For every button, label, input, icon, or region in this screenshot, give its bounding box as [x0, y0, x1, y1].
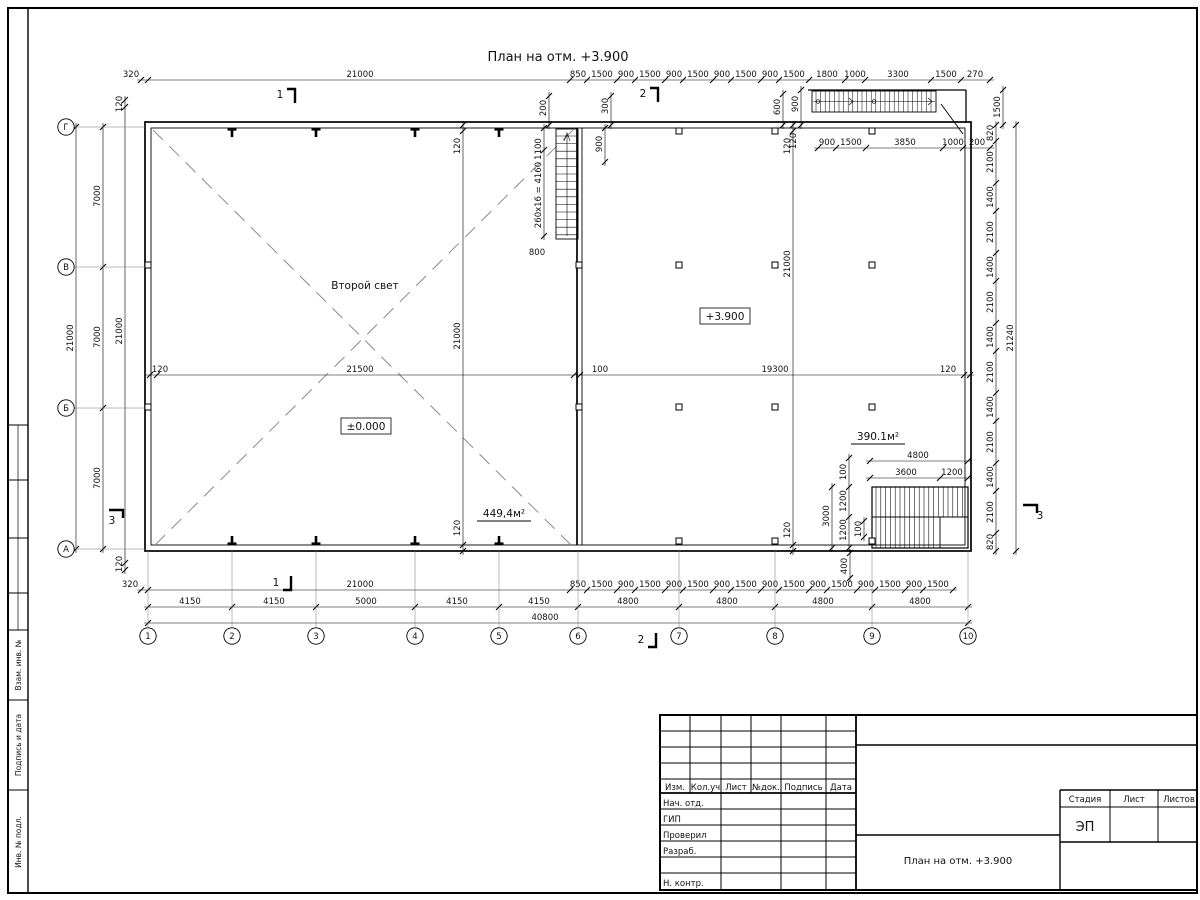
dim-chain-br1: 4800 [866, 451, 972, 464]
area-label: 449,4м² [483, 508, 525, 520]
dim-chain-int790: 12021000120 [783, 121, 796, 555]
dim-label: 900 [666, 580, 682, 590]
dim-label: 21000 [453, 322, 463, 349]
dim-label: 900 [858, 580, 874, 590]
dim-label: 900 [618, 70, 634, 80]
axis-number: 7 [676, 632, 681, 642]
section-marker-flag [287, 89, 295, 103]
section-marker-label: 1 [273, 577, 280, 589]
column-mark [676, 404, 682, 410]
dim-chain-right1: 8202100140021001400210014002100140021001… [986, 121, 999, 555]
dim-label: 1400 [986, 466, 996, 488]
axis-bubbles: ГВБА12345678910 [58, 119, 976, 644]
dim-label: 320 [123, 70, 139, 80]
dim-chain-tv1500: 1500 [993, 86, 1006, 129]
tb-role-cell: Н. контр. [663, 879, 704, 889]
tb-role-cell: ГИП [663, 815, 681, 825]
dim-chain-op900: 900 [595, 124, 608, 166]
column-mark [772, 128, 778, 134]
dim-label: 120 [453, 520, 463, 536]
dim-label: 120 [115, 96, 125, 112]
dim-label: 1500 [639, 70, 661, 80]
dim-label: 120 [789, 133, 799, 149]
dim-label: 2100 [986, 501, 996, 523]
dim-label: 120 [152, 365, 168, 375]
dim-label: 200 [969, 138, 985, 148]
dim-label: 820 [986, 125, 996, 141]
column-mark [869, 262, 875, 268]
dim-label: 1500 [687, 70, 709, 80]
dim-label: 21000 [346, 580, 373, 590]
dim-label: 600 [773, 99, 783, 115]
axis-number: 3 [313, 632, 318, 642]
dim-label: 1500 [687, 580, 709, 590]
dim-label: 900 [819, 138, 835, 148]
dim-label: 2100 [986, 291, 996, 313]
tb-stage-header: Стадия [1069, 795, 1102, 805]
columns [145, 128, 875, 545]
tb-header-cell: Кол.уч [691, 783, 720, 793]
dim-label: 260x16 = 4160 [534, 162, 544, 228]
axis-letter: В [63, 263, 69, 273]
dim-chain-tv600: 600 [773, 90, 786, 129]
dim-label: 1000 [942, 138, 964, 148]
dim-label: 3850 [894, 138, 916, 148]
dim-label: 4800 [812, 597, 834, 607]
dim-chain-bot1: 3202100085015009001500900150090015009001… [122, 580, 957, 593]
dim-label: 21000 [346, 70, 373, 80]
column-mark [869, 404, 875, 410]
dim-label: 1500 [735, 70, 757, 80]
stair-axis6 [556, 129, 578, 239]
column-mark [676, 262, 682, 268]
tb-role-cell: Нач. отд. [663, 799, 704, 809]
dim-label: 1100 [534, 138, 544, 160]
dim-chain-brv4: 400 [840, 549, 853, 582]
dim-label: 900 [714, 70, 730, 80]
dim-label: 2100 [986, 431, 996, 453]
dim-label: 1500 [639, 580, 661, 590]
dim-label: 1500 [840, 138, 862, 148]
dim-label: 100 [592, 365, 608, 375]
stair-exterior-top [808, 90, 966, 134]
section-marker-flag [650, 88, 658, 102]
dim-label: 900 [762, 70, 778, 80]
dim-label: 320 [122, 580, 138, 590]
tb-header-cell: Подпись [784, 783, 822, 793]
column-mark [145, 262, 151, 268]
dim-label: 21000 [115, 317, 125, 344]
dim-label: 1500 [993, 96, 1003, 118]
void-cross-lines [153, 130, 573, 547]
dim-chain-br2: 36001200 [866, 468, 972, 481]
dim-chain-bot3: 40800 [144, 613, 972, 626]
axis-number: 2 [229, 632, 234, 642]
dim-label: 120 [115, 556, 125, 572]
dim-label: 1500 [591, 580, 613, 590]
dim-chain-right2: 21240 [1006, 121, 1019, 555]
dim-chain-bot2: 415041505000415041504800480048004800 [144, 597, 972, 610]
tb-header-cell: Дата [830, 783, 852, 793]
room-labels: Второй свет±0.000+3.900449,4м²390.1м² [331, 280, 905, 521]
dim-label: 3300 [887, 70, 909, 80]
tb-stage-header: Лист [1123, 795, 1145, 805]
dim-label: 900 [762, 580, 778, 590]
side-strip-label: Взам. инв. № [14, 639, 23, 690]
dim-label: 1200 [941, 468, 963, 478]
dim-label: 1500 [735, 580, 757, 590]
dim-chain-left3: 12021000120 [115, 96, 128, 574]
dim-label: 300 [601, 98, 611, 114]
axis-number: 1 [145, 632, 150, 642]
dim-label: 5000 [355, 597, 377, 607]
section-marker-label: 3 [109, 515, 116, 527]
dim-label: 900 [791, 96, 801, 112]
dim-label: 1200 [839, 490, 849, 512]
dim-label: 4150 [446, 597, 468, 607]
dim-chain-brv1: 3000 [822, 483, 835, 552]
column-mark [145, 404, 151, 410]
column-mark [676, 128, 682, 134]
dim-label: 1400 [986, 396, 996, 418]
dim-chain-tv200: 200 [539, 92, 552, 129]
dim-label: 1500 [831, 580, 853, 590]
room-label: Второй свет [331, 280, 399, 292]
dim-chain-left2: 700070007000 [93, 123, 106, 553]
column-mark [676, 538, 682, 544]
dim-label: 4800 [907, 451, 929, 461]
drawing-title: План на отм. +3.900 [488, 50, 629, 65]
section-markers: 112233 [109, 88, 1044, 647]
dim-chain-mid: 1202150010019300120 [146, 365, 974, 378]
side-strip-label: Подпись и дата [14, 714, 23, 776]
dim-label: 1500 [927, 580, 949, 590]
dim-label: 4150 [263, 597, 285, 607]
dim-label: 1500 [783, 580, 805, 590]
dim-chain-top_main: 3202100085015009001500900150090015009001… [123, 70, 994, 83]
axis-number: 4 [412, 632, 417, 642]
dim-label: 900 [906, 580, 922, 590]
building-walls [145, 122, 971, 551]
dim-label: 120 [940, 365, 956, 375]
section-marker-label: 2 [638, 634, 645, 646]
elevation-label: ±0.000 [347, 421, 386, 433]
column-mark [576, 262, 582, 268]
stage-value: ЭП [1076, 820, 1095, 835]
dim-label: 4800 [617, 597, 639, 607]
section-marker-flag [1023, 505, 1037, 513]
dim-chain-top_sub: 900150038501000200 [814, 138, 994, 151]
column-mark [869, 538, 875, 544]
dim-label: 3600 [895, 468, 917, 478]
column-mark [772, 538, 778, 544]
dim-chain-tv300: 300 [601, 92, 614, 129]
dim-label: 200 [539, 100, 549, 116]
dim-chain-brv2: 10012001200 [839, 454, 852, 552]
axis-number: 8 [772, 632, 777, 642]
axis-number: 10 [963, 632, 974, 642]
dim-label: 7000 [93, 326, 103, 348]
dim-label: 100 [854, 521, 864, 537]
floor-plan-drawing: План на отм. +3.900 [0, 0, 1200, 900]
dim-label: 2100 [986, 151, 996, 173]
tb-header-cell: Лист [725, 783, 747, 793]
column-mark [576, 404, 582, 410]
dim-label: 21500 [346, 365, 373, 375]
tb-header-cell: Изм. [665, 783, 685, 793]
dim-label: 4150 [528, 597, 550, 607]
drawing-sheet: План на отм. +3.900 [0, 0, 1200, 900]
dim-label: 1500 [935, 70, 957, 80]
dim-label: 1800 [816, 70, 838, 80]
dim-label: 1500 [591, 70, 613, 80]
dim-chain-brv3: 100 [854, 517, 867, 541]
dim-label: 1400 [986, 256, 996, 278]
dim-label: 100 [839, 464, 849, 480]
dim-label: 1500 [783, 70, 805, 80]
axis-letter: А [63, 545, 69, 555]
area-label: 390.1м² [857, 431, 899, 443]
dim-label: 120 [783, 522, 793, 538]
column-mark [772, 262, 778, 268]
dim-chain-stair1: 1100260x16 = 4160 [534, 124, 547, 240]
dim-label: 3000 [822, 505, 832, 527]
dim-label: 19300 [761, 365, 788, 375]
dim-label: 1500 [879, 580, 901, 590]
tb-role-cell: Разраб. [663, 847, 696, 857]
dim-label: 40800 [531, 613, 558, 623]
dim-label: 21240 [1006, 324, 1016, 351]
side-strip-label: Инв. № подл. [14, 816, 23, 868]
dim-label: 850 [570, 70, 586, 80]
tb-role-cell: Проверил [663, 831, 707, 841]
column-mark [772, 404, 778, 410]
dim-label: 7000 [93, 185, 103, 207]
dim-label: 4150 [179, 597, 201, 607]
dim-label: 270 [967, 70, 983, 80]
dim-label: 900 [810, 580, 826, 590]
door-swing-line [941, 104, 963, 134]
dim-label: 2100 [986, 361, 996, 383]
dim-label: 900 [666, 70, 682, 80]
side-strip-labels: Взам. инв. №Подпись и датаИнв. № подл. [14, 639, 23, 868]
column-mark [869, 128, 875, 134]
elevation-label: +3.900 [706, 311, 745, 323]
section-marker-flag [283, 576, 291, 590]
axis-number: 5 [496, 632, 501, 642]
dim-label: 4800 [909, 597, 931, 607]
dim-label: 120 [453, 138, 463, 154]
dim-label: 1200 [839, 519, 849, 541]
tb-header-cell: №док. [752, 783, 780, 793]
dim-label: 1400 [986, 326, 996, 348]
axis-number: 9 [869, 632, 874, 642]
dim-label: 820 [986, 534, 996, 550]
dim-label: 900 [714, 580, 730, 590]
dim-label: 1000 [844, 70, 866, 80]
dim-label: 800 [529, 248, 545, 258]
dim-label: 400 [840, 558, 850, 574]
stair-bottom-right [872, 487, 968, 548]
section-marker-label: 2 [640, 88, 647, 100]
axis-letter: Г [63, 123, 68, 133]
dim-label: 900 [595, 136, 605, 152]
dim-chain-int460: 12021000120 [453, 121, 466, 555]
dim-label: 21000 [66, 324, 76, 351]
title-block-doc-title: План на отм. +3.900 [904, 856, 1012, 867]
section-marker-label: 1 [277, 89, 284, 101]
dim-label: 4800 [716, 597, 738, 607]
tb-stage-header: Листов [1163, 795, 1195, 805]
dim-label: 900 [618, 580, 634, 590]
section-marker-flag [648, 633, 656, 647]
axis-number: 6 [575, 632, 580, 642]
dim-label: 7000 [93, 467, 103, 489]
dim-label: 2100 [986, 221, 996, 243]
dim-label: 1400 [986, 186, 996, 208]
axis-letter: Б [63, 404, 69, 414]
dim-chain-left1: 21000 [66, 123, 79, 553]
dim-label: 21000 [783, 250, 793, 277]
